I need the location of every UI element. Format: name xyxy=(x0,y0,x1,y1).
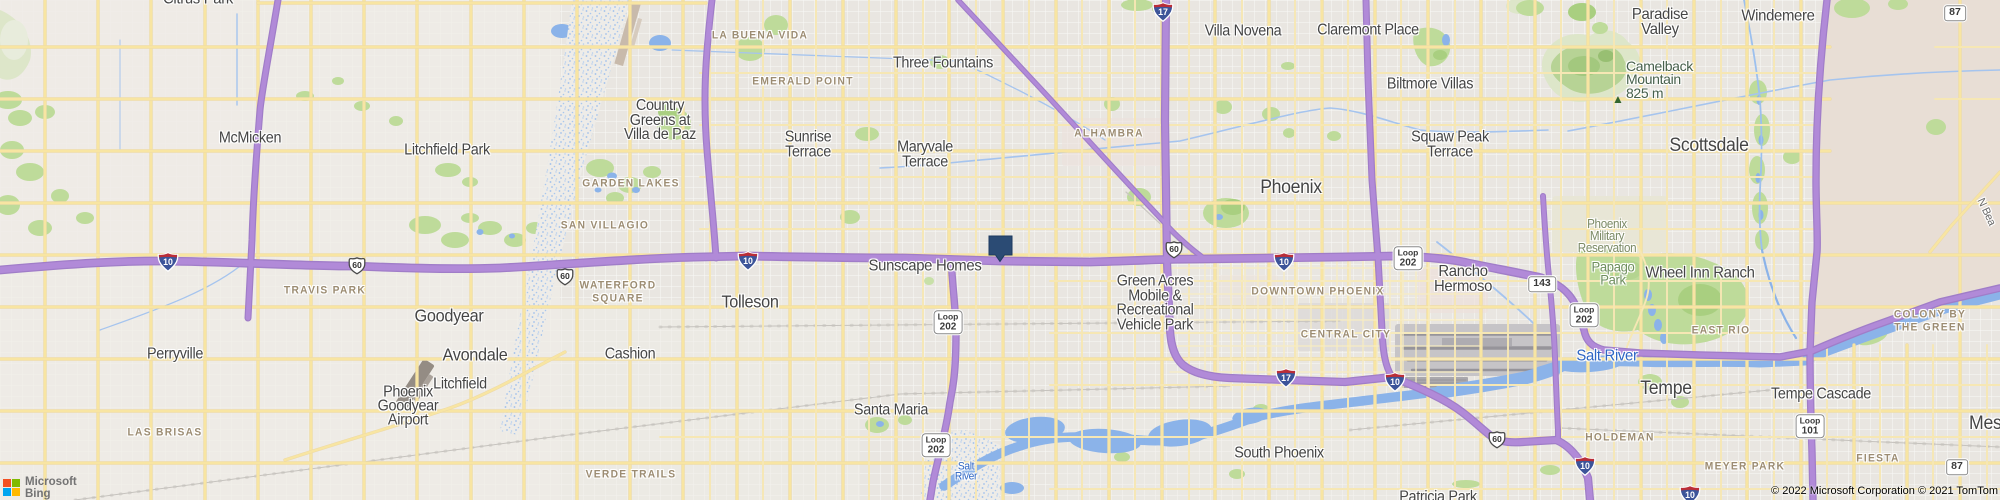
svg-text:17: 17 xyxy=(1158,7,1168,17)
svg-text:10: 10 xyxy=(1580,461,1590,471)
svg-text:60: 60 xyxy=(1169,244,1179,254)
svg-text:60: 60 xyxy=(560,271,570,281)
svg-text:10: 10 xyxy=(163,257,173,267)
svg-text:10: 10 xyxy=(1390,377,1400,387)
svg-text:10: 10 xyxy=(1279,257,1289,267)
svg-text:10: 10 xyxy=(743,256,753,266)
svg-text:10: 10 xyxy=(1685,490,1695,500)
svg-text:17: 17 xyxy=(1281,373,1291,383)
svg-text:60: 60 xyxy=(352,260,362,270)
svg-text:60: 60 xyxy=(1492,434,1502,444)
